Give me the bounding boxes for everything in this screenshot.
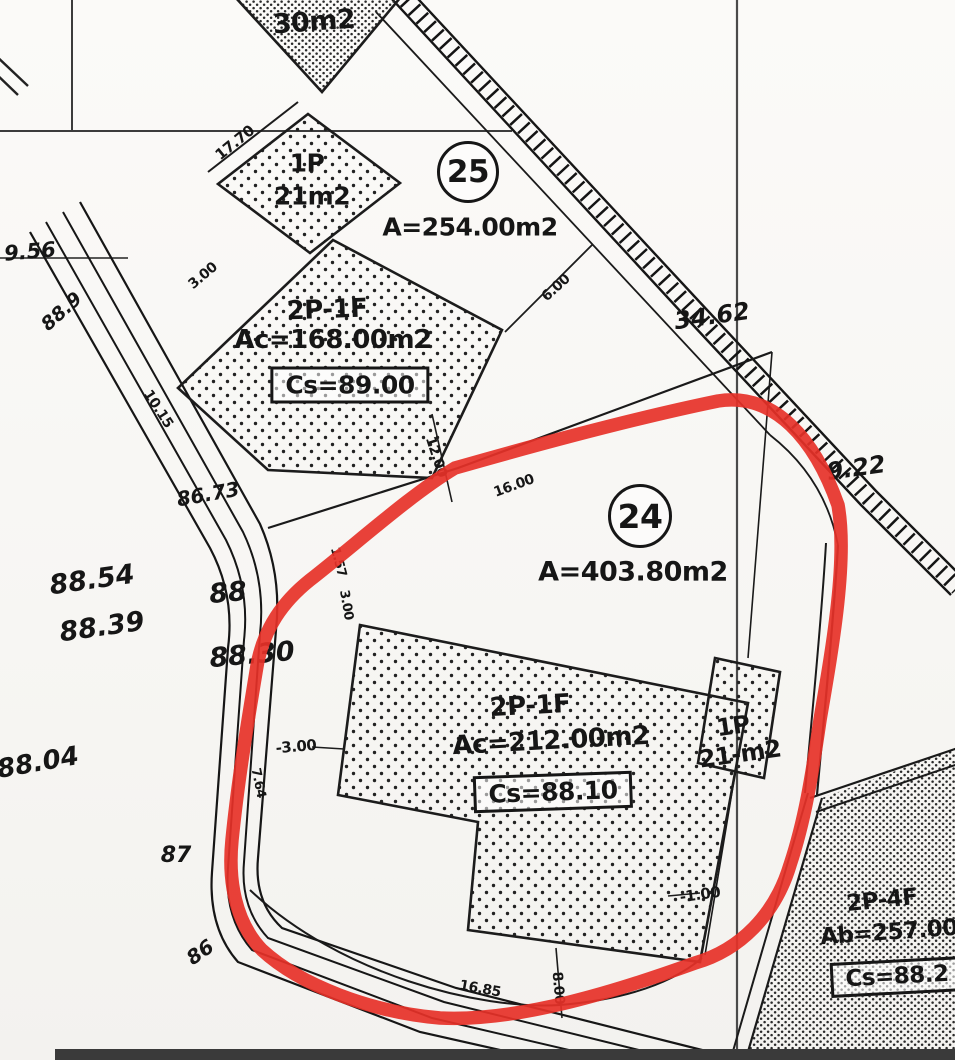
building-25-main-area: Ac=168.00m2: [234, 327, 431, 353]
building-se-floors: 2P-4F: [845, 886, 918, 916]
building-25-main-height: Cs=89.00: [270, 367, 429, 404]
dimension-16-00: 16.00: [492, 472, 536, 499]
spot-elevation-88-39: 88.39: [58, 608, 146, 647]
parcel-24-area: A=403.80m2: [538, 559, 728, 586]
dimension-17-70: 17.70: [213, 123, 257, 163]
spot-elevation-88-30: 88.30: [208, 638, 295, 672]
building-24-main-floors: 2P-1F: [489, 691, 571, 721]
spot-elevation-88-54: 88.54: [48, 561, 136, 600]
parcel-25-area: A=254.00m2: [382, 215, 557, 240]
building-25-small-floors: 1P: [290, 151, 325, 176]
spot-elevation-88: 88: [208, 578, 248, 608]
dimension-1-57: 1.57: [328, 546, 348, 578]
spot-elevation-88-04: 88.04: [0, 743, 81, 783]
spot-elevation-34-62: 34.62: [673, 299, 752, 333]
dimension-3-00-a: 3.00: [186, 260, 220, 292]
dimension-10-15: 10.15: [141, 388, 176, 431]
building-se-area: Ab=257.00: [819, 917, 955, 950]
dimension-16-85: 16.85: [458, 978, 502, 999]
parcel-24-number: 24: [608, 484, 672, 548]
building-24-small-floors: 1P: [715, 712, 751, 740]
scan-edge: [55, 1049, 955, 1060]
spot-elevation-9-56: 9.56: [3, 239, 56, 264]
building-se-height: Cs=88.2: [830, 956, 955, 998]
building-24-small-area: 21-m2: [697, 736, 782, 771]
dimension-3-00-v: 3.00: [337, 589, 355, 621]
building-25-main-floors: 2P-1F: [286, 296, 368, 325]
parcel-25-number: 25: [437, 141, 499, 203]
cadastral-map: 30m2 17.70 1P 21m2 25 A=254.00m2 3.00 2P…: [0, 0, 955, 1060]
dimension-6-00: 6.00: [539, 272, 573, 304]
dimension-3-00-b: -3.00: [275, 738, 317, 756]
spot-elevation-88-9: 88.9: [38, 289, 86, 334]
dimension-12-00: 12.00: [423, 435, 449, 479]
spot-elevation-86-73: 86.73: [175, 479, 241, 510]
dimension-1-00: -1.00: [679, 885, 721, 906]
spot-elevation-86: 86: [183, 936, 217, 968]
building-24-main-height: Cs=88.10: [473, 771, 633, 814]
map-labels: 30m2 17.70 1P 21m2 25 A=254.00m2 3.00 2P…: [0, 0, 955, 1060]
spot-elevation-87: 87: [161, 845, 192, 867]
dimension-8-00: 8.00: [550, 971, 567, 1005]
label-30m2: 30m2: [272, 6, 356, 39]
building-24-main-area: Ac=212.00m2: [452, 723, 650, 759]
spot-elevation-9-22: 9.22: [825, 452, 887, 484]
dimension-7-64: 7.64: [249, 767, 268, 799]
building-25-small-area: 21m2: [274, 184, 350, 209]
